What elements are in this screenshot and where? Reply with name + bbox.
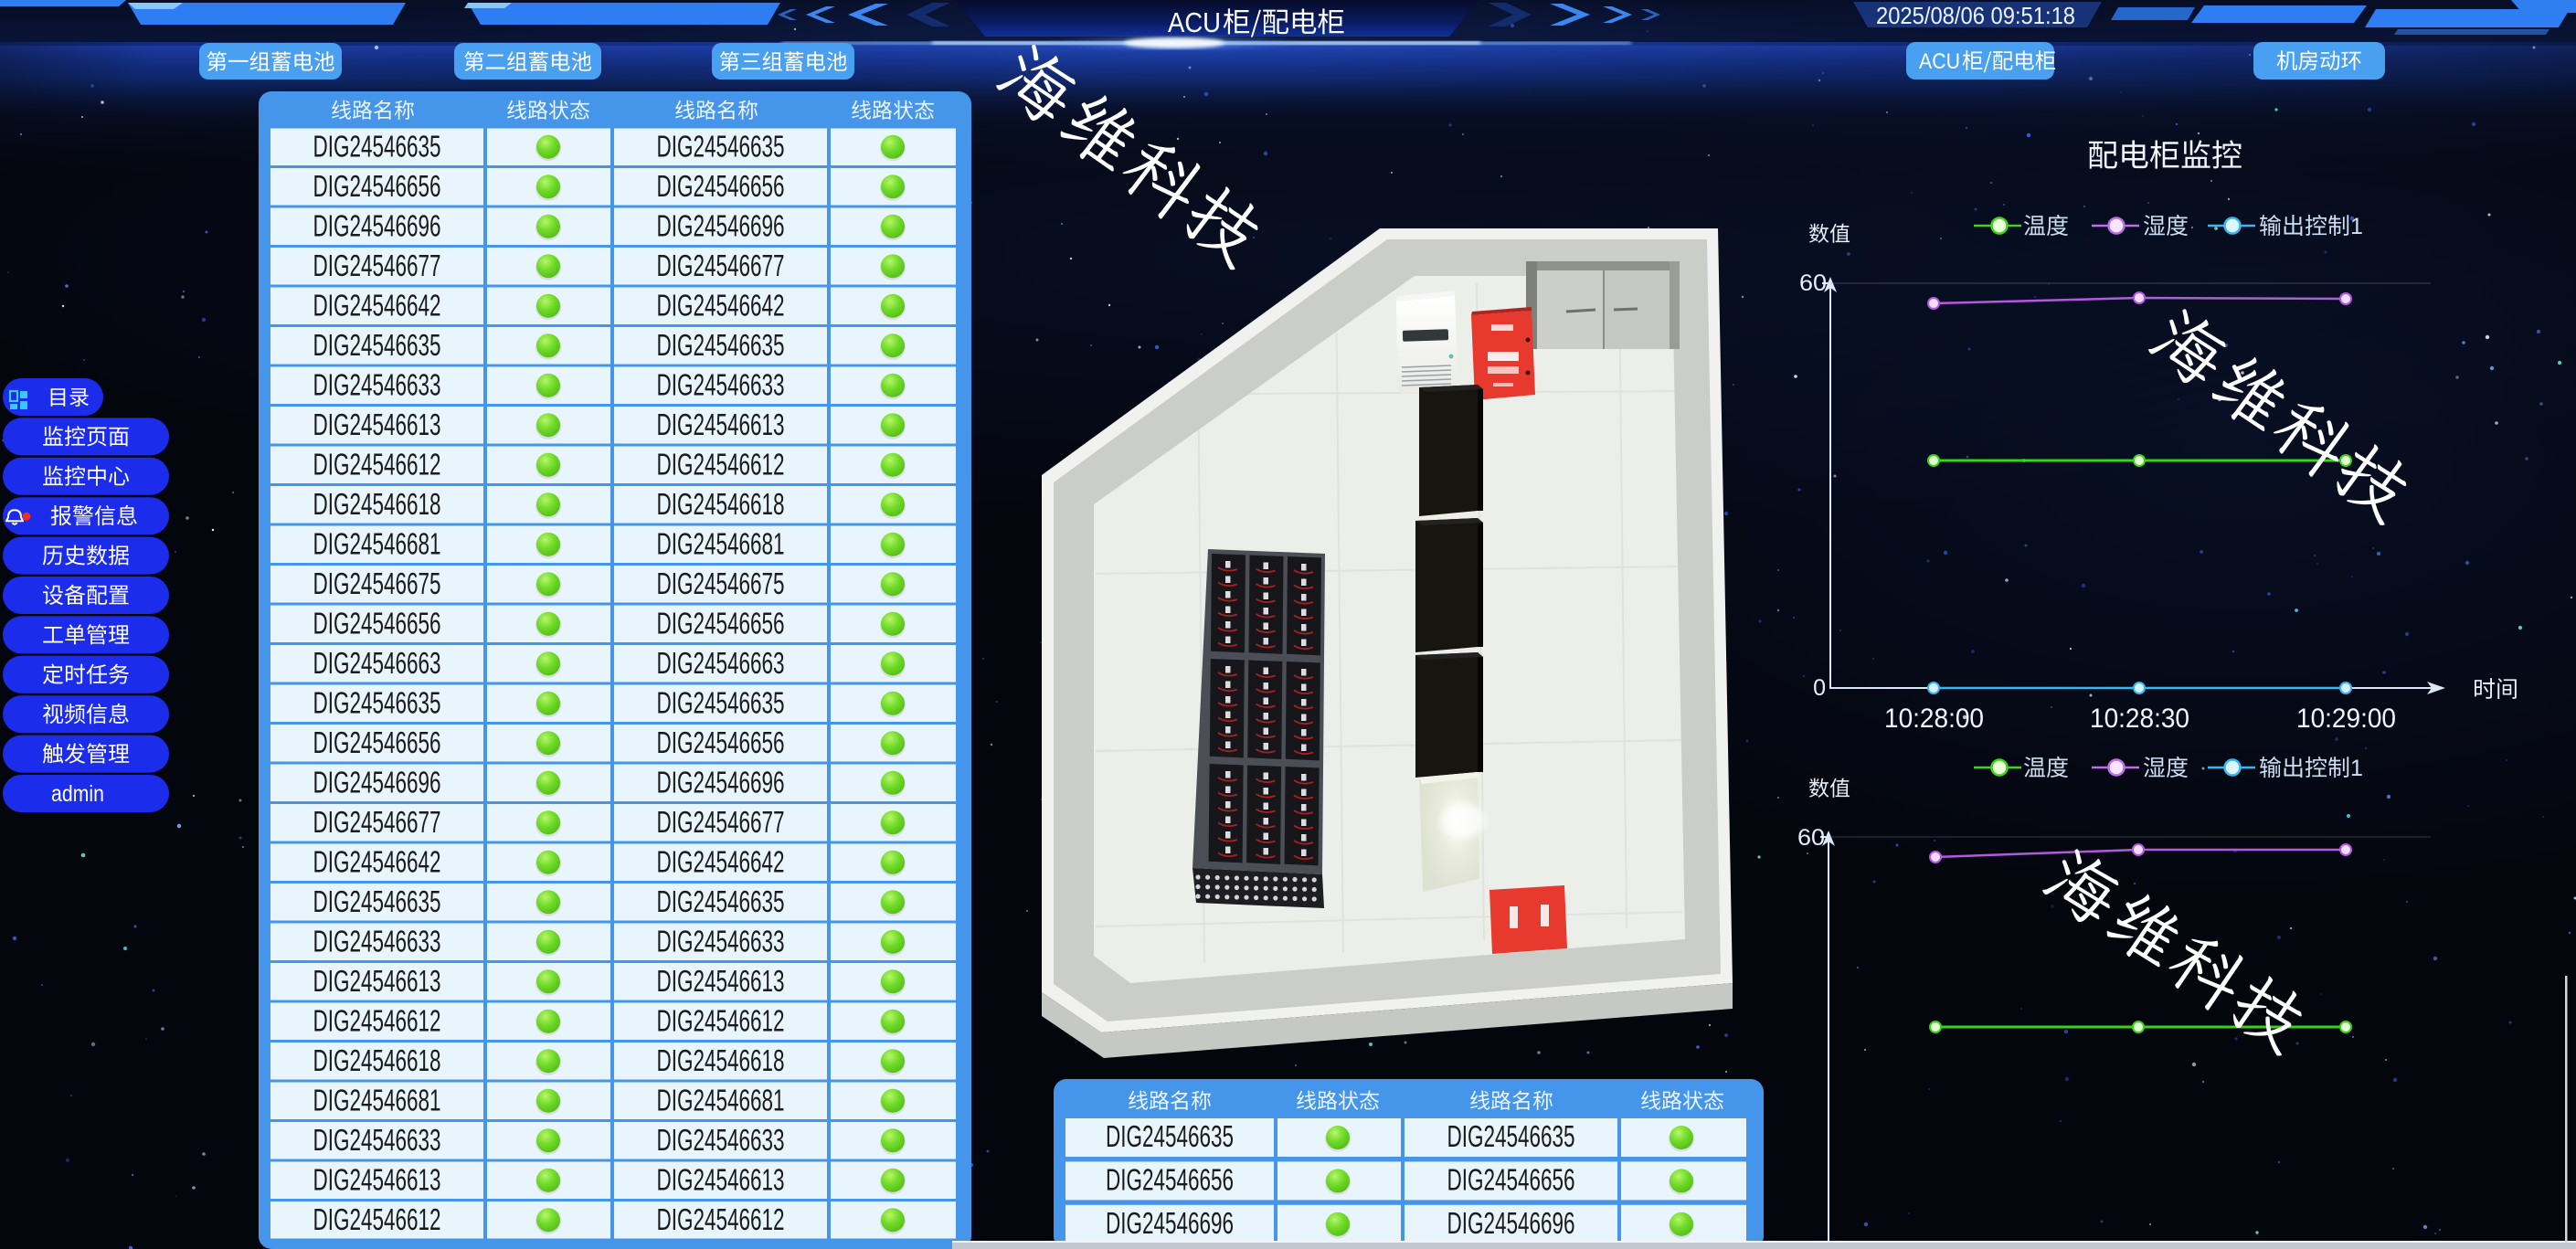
svg-text:10:28:00: 10:28:00 bbox=[1884, 704, 1984, 734]
svg-text:DIG24546612: DIG24546612 bbox=[657, 1202, 785, 1236]
svg-text:DIG24546663: DIG24546663 bbox=[657, 646, 785, 680]
svg-text:DIG24546675: DIG24546675 bbox=[313, 566, 441, 600]
svg-text:DIG24546656: DIG24546656 bbox=[657, 169, 785, 203]
svg-text:DIG24546696: DIG24546696 bbox=[657, 766, 785, 799]
svg-text:DIG24546633: DIG24546633 bbox=[657, 925, 785, 958]
svg-text:0: 0 bbox=[1813, 675, 1826, 701]
svg-text:ACU: ACU bbox=[1919, 49, 1960, 74]
svg-text:DIG24546618: DIG24546618 bbox=[313, 487, 441, 521]
svg-text:DIG24546633: DIG24546633 bbox=[313, 1123, 441, 1157]
svg-text:DIG24546613: DIG24546613 bbox=[657, 408, 785, 441]
svg-text:DIG24546642: DIG24546642 bbox=[313, 289, 441, 323]
svg-text:DIG24546633: DIG24546633 bbox=[657, 368, 785, 402]
svg-text:DIG24546613: DIG24546613 bbox=[313, 1163, 441, 1197]
svg-text:60: 60 bbox=[1797, 825, 1825, 851]
svg-text:DIG24546635: DIG24546635 bbox=[657, 686, 785, 720]
svg-text:DIG24546677: DIG24546677 bbox=[313, 805, 441, 839]
svg-text:60: 60 bbox=[1799, 270, 1827, 296]
svg-text:10:29:00: 10:29:00 bbox=[2296, 704, 2396, 734]
svg-text:DIG24546612: DIG24546612 bbox=[657, 448, 785, 482]
svg-text:DIG24546656: DIG24546656 bbox=[1447, 1162, 1575, 1196]
svg-text:DIG24546681: DIG24546681 bbox=[657, 1084, 785, 1117]
svg-text:DIG24546677: DIG24546677 bbox=[313, 249, 441, 282]
svg-text:DIG24546656: DIG24546656 bbox=[1106, 1162, 1234, 1196]
svg-text:DIG24546635: DIG24546635 bbox=[657, 884, 785, 918]
svg-text:DIG24546656: DIG24546656 bbox=[657, 725, 785, 759]
svg-text:2025/08/06 09:51:18: 2025/08/06 09:51:18 bbox=[1876, 2, 2075, 29]
svg-text:DIG24546663: DIG24546663 bbox=[313, 646, 441, 680]
svg-text:10:28:30: 10:28:30 bbox=[2090, 704, 2189, 734]
svg-text:DIG24546696: DIG24546696 bbox=[1106, 1206, 1234, 1240]
svg-text:DIG24546677: DIG24546677 bbox=[657, 249, 785, 282]
svg-text:DIG24546635: DIG24546635 bbox=[313, 884, 441, 918]
svg-text:DIG24546612: DIG24546612 bbox=[313, 1202, 441, 1236]
svg-text:DIG24546635: DIG24546635 bbox=[1106, 1119, 1234, 1153]
svg-text:DIG24546675: DIG24546675 bbox=[657, 566, 785, 600]
svg-text:DIG24546633: DIG24546633 bbox=[313, 368, 441, 402]
svg-text:DIG24546612: DIG24546612 bbox=[313, 448, 441, 482]
svg-text:ACU: ACU bbox=[1168, 6, 1221, 38]
svg-text:DIG24546681: DIG24546681 bbox=[657, 527, 785, 561]
svg-text:DIG24546613: DIG24546613 bbox=[657, 964, 785, 998]
svg-text:DIG24546612: DIG24546612 bbox=[313, 1004, 441, 1038]
svg-text:DIG24546635: DIG24546635 bbox=[313, 130, 441, 164]
svg-text:DIG24546696: DIG24546696 bbox=[313, 766, 441, 799]
svg-text:DIG24546656: DIG24546656 bbox=[657, 607, 785, 640]
svg-text:DIG24546642: DIG24546642 bbox=[313, 845, 441, 879]
svg-text:DIG24546642: DIG24546642 bbox=[657, 845, 785, 879]
svg-text:DIG24546613: DIG24546613 bbox=[657, 1163, 785, 1197]
svg-text:1: 1 bbox=[2350, 214, 2363, 239]
svg-text:DIG24546613: DIG24546613 bbox=[313, 964, 441, 998]
svg-text:DIG24546618: DIG24546618 bbox=[657, 1043, 785, 1077]
svg-text:admin: admin bbox=[51, 781, 104, 807]
svg-text:DIG24546612: DIG24546612 bbox=[657, 1004, 785, 1038]
svg-text:DIG24546635: DIG24546635 bbox=[313, 328, 441, 362]
svg-text:DIG24546696: DIG24546696 bbox=[657, 209, 785, 243]
svg-text:DIG24546642: DIG24546642 bbox=[657, 289, 785, 323]
svg-text:DIG24546681: DIG24546681 bbox=[313, 1084, 441, 1117]
svg-text:DIG24546656: DIG24546656 bbox=[313, 725, 441, 759]
svg-text:DIG24546656: DIG24546656 bbox=[313, 607, 441, 640]
svg-text:1: 1 bbox=[2350, 756, 2363, 781]
svg-text:DIG24546613: DIG24546613 bbox=[313, 408, 441, 441]
svg-text:DIG24546635: DIG24546635 bbox=[657, 328, 785, 362]
svg-text:DIG24546635: DIG24546635 bbox=[313, 686, 441, 720]
svg-text:DIG24546677: DIG24546677 bbox=[657, 805, 785, 839]
svg-text:DIG24546696: DIG24546696 bbox=[1447, 1206, 1575, 1240]
svg-text:DIG24546656: DIG24546656 bbox=[313, 169, 441, 203]
svg-text:DIG24546696: DIG24546696 bbox=[313, 209, 441, 243]
svg-text:DIG24546618: DIG24546618 bbox=[657, 487, 785, 521]
svg-text:DIG24546635: DIG24546635 bbox=[657, 130, 785, 164]
svg-text:DIG24546681: DIG24546681 bbox=[313, 527, 441, 561]
svg-text:DIG24546635: DIG24546635 bbox=[1447, 1119, 1575, 1153]
svg-text:DIG24546633: DIG24546633 bbox=[313, 925, 441, 958]
svg-text:DIG24546618: DIG24546618 bbox=[313, 1043, 441, 1077]
svg-text:DIG24546633: DIG24546633 bbox=[657, 1123, 785, 1157]
